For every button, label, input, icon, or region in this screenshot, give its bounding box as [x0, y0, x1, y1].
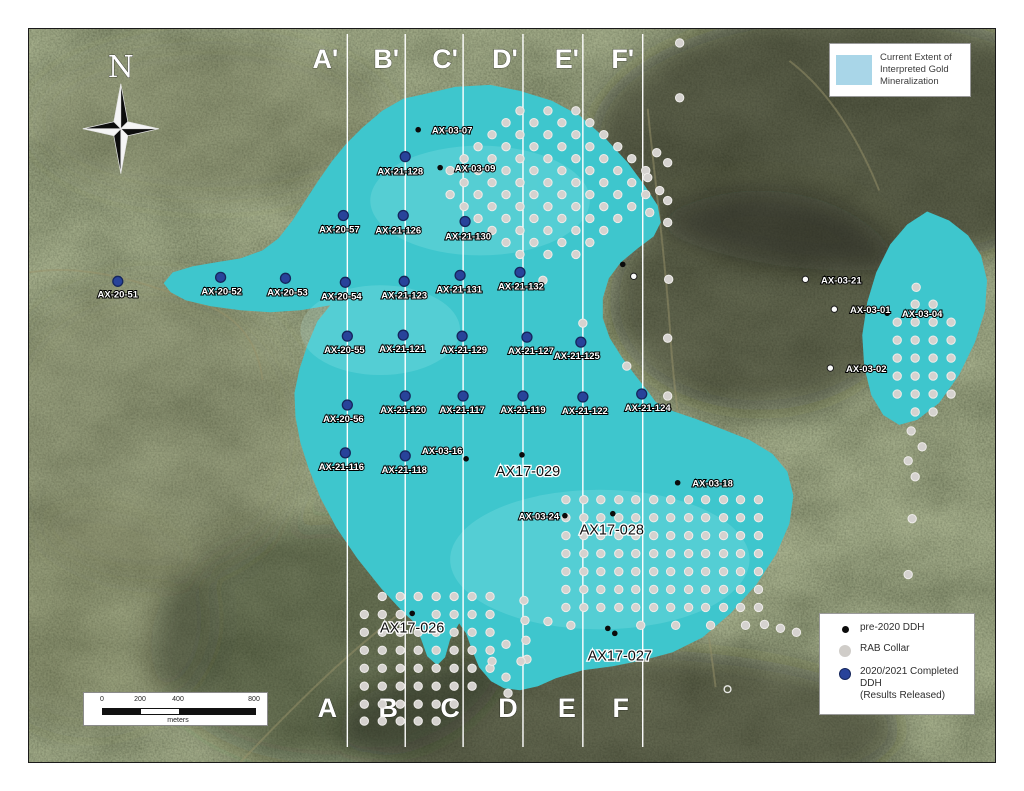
rab-collar-dot: [701, 603, 709, 611]
rab-collar-dot: [754, 531, 762, 539]
rab-collar-dot: [474, 214, 482, 222]
rab-collar-dot: [911, 390, 919, 398]
rab-collar-dot: [502, 142, 510, 150]
section-label-top-F: F': [611, 44, 634, 74]
rab-collar-dot: [360, 717, 368, 725]
rab-collar-dot: [468, 592, 476, 600]
rab-collar-dot: [414, 717, 422, 725]
drillhole-label: AX-21-116: [319, 462, 364, 473]
rab-collar-dot: [558, 238, 566, 246]
rab-collar-dot: [632, 585, 640, 593]
rab-collar-dot: [396, 717, 404, 725]
rab-collar-dot: [520, 596, 528, 604]
rab-collar-dot: [450, 592, 458, 600]
rab-collar-dot: [432, 700, 440, 708]
rab-collar-dot: [632, 496, 640, 504]
completed-ddh-dot: [518, 391, 528, 401]
rab-collar-dot: [460, 154, 468, 162]
rab-collar-dot: [488, 131, 496, 139]
rab-collar-dot: [360, 700, 368, 708]
rab-collar-dot: [396, 700, 404, 708]
rab-collar-dot: [600, 131, 608, 139]
rab-collar-dot: [378, 717, 386, 725]
rab-collar-dot: [572, 178, 580, 186]
completed-ddh-dot: [522, 332, 532, 342]
rab-collar-dot: [650, 603, 658, 611]
rab-collar-dot: [414, 646, 422, 654]
completed-ddh-dot: [399, 276, 409, 286]
drillhole-label: AX-21-130: [445, 231, 491, 242]
rab-collar-dot: [656, 186, 664, 194]
rab-collar-dot: [516, 226, 524, 234]
rab-collar-dot: [432, 664, 440, 672]
rab-collar-dot: [432, 682, 440, 690]
rab-collar-dot: [632, 513, 640, 521]
rab-collar-dot: [544, 154, 552, 162]
legend-label-completed-ddh: 2020/2021 Completed DDH (Results Release…: [860, 666, 958, 702]
rab-collar-dot: [432, 717, 440, 725]
rab-collar-dot: [741, 621, 749, 629]
rab-collar-dot: [360, 682, 368, 690]
rab-collar-dot: [597, 603, 605, 611]
rab-collar-dot: [586, 238, 594, 246]
scale-tick-200: 200: [134, 696, 146, 703]
rab-collar-dot: [586, 190, 594, 198]
rab-collar-dot: [396, 682, 404, 690]
rab-collar-dot: [580, 567, 588, 575]
rab-collar-dot: [597, 567, 605, 575]
rab-collar-dot: [562, 603, 570, 611]
rab-collar-dot: [530, 166, 538, 174]
rab-collar-dot: [378, 610, 386, 618]
rab-collar-dot: [684, 585, 692, 593]
rab-collar-dot: [736, 513, 744, 521]
rab-collar-dot: [468, 664, 476, 672]
open-circle-drillhole: [802, 276, 808, 282]
rab-collar-dot: [360, 610, 368, 618]
rab-collar-dot: [719, 549, 727, 557]
rab-collar-dot: [947, 372, 955, 380]
rab-collar-dot: [516, 131, 524, 139]
rab-collar-dot: [396, 592, 404, 600]
rab-collar-dot: [706, 621, 714, 629]
completed-ddh-dot: [576, 337, 586, 347]
rab-collar-dot: [663, 158, 671, 166]
rab-collar-dot: [644, 173, 652, 181]
rab-collar-dot: [615, 585, 623, 593]
legend-symbols: pre-2020 DDH RAB Collar 2020/2021 Comple…: [819, 613, 975, 715]
drillhole-label: AX-20-57: [319, 224, 360, 235]
rab-collar-dot: [615, 603, 623, 611]
drillhole-label: AX-21-118: [382, 465, 427, 476]
rab-collar-dot: [580, 603, 588, 611]
rab-collar-dot: [586, 142, 594, 150]
legend-extent: Current Extent of Interpreted Gold Miner…: [829, 43, 971, 97]
rab-collar-dot: [666, 549, 674, 557]
rab-collar-dot: [675, 94, 683, 102]
drillhole-label: AX-21-129: [441, 345, 487, 356]
rab-collar-dot: [893, 372, 901, 380]
completed-ddh-dot: [400, 152, 410, 162]
rab-collar-dot: [572, 250, 580, 258]
pre-2020-ddh-dot: [415, 127, 421, 133]
rab-collar-dot: [530, 119, 538, 127]
pre-2020-ddh-dot: [620, 262, 626, 268]
rab-collar-dot: [701, 585, 709, 593]
rab-collar-dot: [562, 496, 570, 504]
rab-collar-dot: [736, 496, 744, 504]
rab-collar-dot: [719, 531, 727, 539]
rab-collar-dot: [468, 610, 476, 618]
section-label-bottom-C: C: [440, 693, 459, 723]
rab-collar-dot: [893, 336, 901, 344]
rab-collar-dot: [663, 334, 671, 342]
drillhole-label: AX-21-122: [562, 406, 608, 417]
rab-collar-dot: [558, 190, 566, 198]
rab-collar-dot: [701, 549, 709, 557]
drillhole-label: AX-03-16: [422, 446, 463, 457]
rab-collar-dot: [486, 646, 494, 654]
rab-collar-dot: [929, 300, 937, 308]
drillhole-label-large: AX17-027: [588, 648, 652, 664]
rab-collar-dot: [911, 408, 919, 416]
drillhole-label: AX-03-01: [850, 305, 891, 316]
rab-collar-dot: [600, 202, 608, 210]
rab-collar-dot: [666, 603, 674, 611]
open-circle-drillhole: [831, 306, 837, 312]
drillhole-label: AX-21-127: [508, 346, 554, 357]
completed-ddh-marker: [839, 668, 851, 680]
scale-bar-segments: [102, 708, 256, 715]
rab-collar-dot: [623, 362, 631, 370]
completed-ddh-dot: [398, 330, 408, 340]
rab-collar-dot: [597, 496, 605, 504]
rab-collar-dot: [929, 354, 937, 362]
rab-collar-dot: [468, 646, 476, 654]
completed-ddh-dot: [400, 451, 410, 461]
pre-2020-ddh-dot: [675, 480, 681, 486]
pre-2020-ddh-dot: [409, 611, 415, 617]
completed-ddh-dot: [578, 392, 588, 402]
rab-collar-dot: [736, 603, 744, 611]
rab-collar-dot: [378, 664, 386, 672]
rab-collar-dot: [530, 238, 538, 246]
completed-ddh-dot: [338, 211, 348, 221]
rab-collar-dot: [450, 628, 458, 636]
rab-collar-dot: [947, 336, 955, 344]
section-label-top-D: D': [492, 44, 518, 74]
rab-collar-dot: [929, 408, 937, 416]
rab-collar-dot: [893, 318, 901, 326]
completed-ddh-dot: [280, 273, 290, 283]
rab-collar-dot: [719, 567, 727, 575]
rab-collar-dot: [684, 496, 692, 504]
completed-ddh-dot: [400, 391, 410, 401]
rab-collar-dot: [929, 336, 937, 344]
rab-collar-dot: [904, 570, 912, 578]
drillhole-label-large: AX17-029: [496, 464, 560, 480]
rab-collar-dot: [517, 657, 525, 665]
scale-tick-0: 0: [100, 696, 104, 703]
drillhole-label: AX-20-54: [321, 291, 362, 302]
drillhole-label: AX-21-128: [377, 167, 423, 178]
rab-collar-dot: [488, 154, 496, 162]
completed-ddh-dot: [342, 400, 352, 410]
completed-ddh-dot: [342, 331, 352, 341]
rab-collar-dot: [488, 202, 496, 210]
rab-collar-dot: [719, 603, 727, 611]
rab-collar-dot: [579, 319, 587, 327]
rab-collar-dot: [486, 610, 494, 618]
rab-collar-dot: [502, 640, 510, 648]
completed-ddh-dot: [515, 267, 525, 277]
rab-collar-dot: [792, 628, 800, 636]
rab-collar-dot: [650, 496, 658, 504]
map-document-page: A'AB'BC'CD'DE'EF'F AX-03-21AX-03-01AX-03…: [0, 0, 1024, 791]
rab-collar-dot: [615, 513, 623, 521]
rab-collar-dot: [460, 202, 468, 210]
rab-collar-dot: [450, 610, 458, 618]
rab-collar-dot: [628, 154, 636, 162]
rab-collar-dot: [396, 664, 404, 672]
rab-collar-dot: [450, 682, 458, 690]
rab-collar-dot: [615, 567, 623, 575]
rab-collar-dot: [736, 549, 744, 557]
rab-collar-dot: [502, 238, 510, 246]
rab-collar-dot: [666, 513, 674, 521]
rab-collar-dot: [907, 427, 915, 435]
pre-2020-ddh-dot: [612, 631, 618, 637]
pre-2020-ddh-dot: [437, 165, 443, 171]
pre-2020-ddh-dot: [605, 626, 611, 632]
rab-collar-dot: [760, 620, 768, 628]
rab-collar-dot: [664, 275, 672, 283]
rab-collar-dot: [521, 616, 529, 624]
rab-collar-dot: [947, 390, 955, 398]
drillhole-label: AX-03-09: [455, 164, 496, 175]
rab-collar-dot: [544, 250, 552, 258]
rab-collar-dot: [637, 621, 645, 629]
rab-collar-dot: [666, 496, 674, 504]
rab-collar-dot: [446, 166, 454, 174]
drillhole-label: AX-20-55: [324, 345, 365, 356]
rab-collar-dot: [947, 318, 955, 326]
drillhole-label: AX-03-24: [519, 512, 560, 523]
rab-collar-dot: [544, 178, 552, 186]
rab-collar-dot: [378, 682, 386, 690]
rab-collar-dot: [947, 354, 955, 362]
rab-collar-dot: [600, 226, 608, 234]
rab-collar-dot: [502, 190, 510, 198]
rab-collar-dot: [558, 166, 566, 174]
completed-ddh-dot: [637, 389, 647, 399]
rab-collar-dot: [562, 531, 570, 539]
rab-collar-dot: [562, 567, 570, 575]
rab-collar-dot: [736, 531, 744, 539]
rab-collar-dot: [567, 621, 575, 629]
drillhole-label: AX-21-125: [554, 351, 600, 362]
rab-collar-dot: [460, 178, 468, 186]
drillhole-label-large: AX17-026: [380, 620, 444, 636]
rab-collar-dot: [558, 142, 566, 150]
north-label: N: [108, 50, 134, 85]
rab-collar-dot: [488, 657, 496, 665]
rab-collar-dot: [614, 142, 622, 150]
drillhole-label: AX-20-56: [323, 414, 364, 425]
rab-collar-dot: [615, 496, 623, 504]
section-label-top-B: B': [373, 44, 399, 74]
rab-collar-dot: [754, 603, 762, 611]
rab-collar-dot: [572, 107, 580, 115]
drillhole-label: AX-21-132: [498, 281, 544, 292]
rab-collar-dot: [719, 585, 727, 593]
section-label-top-A: A': [312, 44, 338, 74]
scale-bar: 0 200 400 800 meters: [83, 692, 268, 726]
legend-label-pre2020: pre-2020 DDH: [860, 622, 924, 634]
section-label-bottom-F: F: [613, 693, 629, 723]
rab-collar-dot: [396, 646, 404, 654]
rab-collar-dot: [911, 372, 919, 380]
legend-row-pre2020: pre-2020 DDH: [830, 622, 968, 634]
rab-collar-dot: [719, 513, 727, 521]
rab-collar-dot: [684, 603, 692, 611]
completed-ddh-dot: [340, 448, 350, 458]
rab-collar-dot: [586, 119, 594, 127]
rab-collar-dot: [614, 214, 622, 222]
pre-2020-ddh-dot: [519, 452, 525, 458]
completed-ddh-dot: [457, 331, 467, 341]
legend-label-rab: RAB Collar: [860, 643, 909, 655]
rab-collar-dot: [684, 549, 692, 557]
pre-2020-ddh-marker: [842, 626, 849, 633]
rab-collar-dot: [516, 178, 524, 186]
rab-collar-dot: [474, 142, 482, 150]
drillhole-label: AX-03-07: [432, 126, 473, 137]
rab-collar-dot: [558, 119, 566, 127]
open-circle-drillhole: [631, 273, 637, 279]
rab-collar-dot: [468, 682, 476, 690]
rab-collar-dot: [628, 178, 636, 186]
rab-collar-dot: [488, 178, 496, 186]
completed-ddh-dot: [460, 216, 470, 226]
drillhole-label: AX-20-51: [98, 289, 139, 300]
rab-collar-dot: [450, 664, 458, 672]
rab-collar-dot: [572, 131, 580, 139]
rab-collar-dot: [572, 202, 580, 210]
drillhole-label-large: AX17-028: [580, 523, 644, 539]
scale-unit: meters: [167, 717, 188, 724]
rab-collar-dot: [516, 250, 524, 258]
rab-collar-dot: [911, 473, 919, 481]
rab-collar-dot: [911, 300, 919, 308]
rab-collar-dot: [522, 636, 530, 644]
rab-collar-dot: [544, 226, 552, 234]
drillhole-label: AX-20-52: [201, 286, 242, 297]
drillhole-label: AX-03-02: [846, 364, 887, 375]
scale-tick-400: 400: [172, 696, 184, 703]
rab-collar-dot: [754, 496, 762, 504]
drillhole-label: AX-21-121: [379, 344, 425, 355]
rab-collar-dot: [502, 214, 510, 222]
legend-row-rab: RAB Collar: [830, 643, 968, 657]
section-label-bottom-E: E: [558, 693, 576, 723]
rab-collar-dot: [754, 513, 762, 521]
rab-collar-dot: [504, 689, 512, 697]
rab-collar-dot: [911, 354, 919, 362]
completed-ddh-dot: [455, 270, 465, 280]
completed-ddh-dot: [113, 276, 123, 286]
rab-collar-dot: [701, 567, 709, 575]
completed-ddh-dot: [340, 277, 350, 287]
rab-collar-dot: [701, 513, 709, 521]
rab-collar-dot: [754, 567, 762, 575]
rab-collar-dot: [530, 142, 538, 150]
rab-collar-dot: [396, 610, 404, 618]
rab-collar-dot: [719, 496, 727, 504]
rab-collar-dot: [912, 283, 920, 291]
rab-collar-dot: [468, 628, 476, 636]
scale-tick-800: 800: [248, 696, 260, 703]
rab-collar-dot: [597, 549, 605, 557]
rab-collar-dot: [502, 119, 510, 127]
rab-collar-dot: [929, 390, 937, 398]
rab-collar-dot: [632, 549, 640, 557]
rab-collar-dot: [530, 214, 538, 222]
rab-collar-dot: [675, 39, 683, 47]
rab-collar-dot: [474, 190, 482, 198]
map-frame: A'AB'BC'CD'DE'EF'F AX-03-21AX-03-01AX-03…: [28, 28, 996, 763]
drillhole-label: AX-21-126: [375, 225, 421, 236]
rab-collar-dot: [614, 190, 622, 198]
rab-collar-dot: [701, 531, 709, 539]
mineralization-swatch: [836, 55, 872, 85]
rab-collar-dot: [580, 496, 588, 504]
rab-collar-dot: [650, 549, 658, 557]
rab-collar-dot: [632, 603, 640, 611]
rab-collar-dot: [597, 585, 605, 593]
rab-collar-dot: [736, 567, 744, 575]
rab-collar-dot: [776, 624, 784, 632]
rab-collar-dot: [572, 154, 580, 162]
rab-collar-dot: [544, 107, 552, 115]
rab-collar-dot: [502, 166, 510, 174]
rab-collar-dot: [530, 190, 538, 198]
rab-collar-dot: [414, 700, 422, 708]
rab-collar-dot: [414, 592, 422, 600]
rab-collar-dot: [642, 190, 650, 198]
section-label-bottom-A: A: [318, 693, 337, 723]
rab-collar-dot: [414, 664, 422, 672]
drillhole-label: AX-21-120: [380, 405, 426, 416]
drillhole-label: AX-21-124: [625, 403, 672, 414]
rab-collar-dot: [432, 610, 440, 618]
rab-collar-dot: [432, 646, 440, 654]
rab-collar-dot: [663, 392, 671, 400]
rab-collar-dot: [701, 496, 709, 504]
rab-collar-dot: [754, 585, 762, 593]
rab-collar-dot: [614, 166, 622, 174]
rab-collar-dot: [544, 617, 552, 625]
rab-collar-dot: [736, 585, 744, 593]
drillhole-label: AX-21-117: [439, 405, 484, 416]
completed-ddh-dot: [398, 211, 408, 221]
drillhole-label: AX-21-131: [436, 284, 482, 295]
pre-2020-ddh-dot: [610, 511, 616, 517]
section-label-top-C: C': [432, 44, 458, 74]
rab-collar-dot: [646, 208, 654, 216]
rab-collar-dot: [586, 214, 594, 222]
rab-collar-dot: [908, 514, 916, 522]
